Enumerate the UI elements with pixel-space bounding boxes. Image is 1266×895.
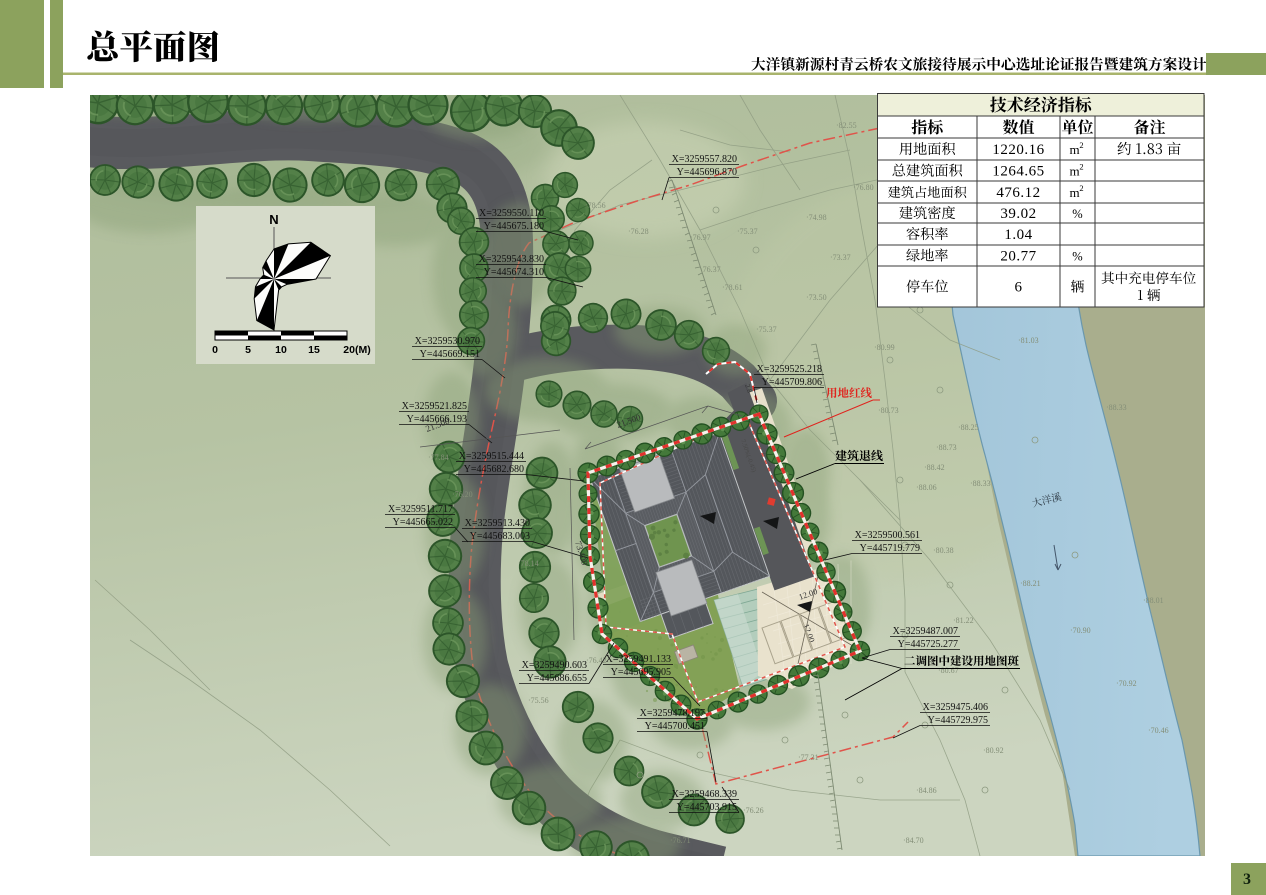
svg-text:1220.16: 1220.16	[992, 142, 1044, 158]
svg-text:·80.73: ·80.73	[878, 406, 899, 415]
svg-text:%: %	[1072, 250, 1082, 264]
svg-text:Y=445700.451: Y=445700.451	[645, 721, 705, 732]
svg-text:X=3259530.970: X=3259530.970	[415, 336, 480, 347]
svg-text:·88.73: ·88.73	[936, 443, 957, 452]
svg-text:Y=445683.003: Y=445683.003	[470, 531, 530, 542]
svg-text:m: m	[1069, 164, 1079, 179]
svg-text:·76.28: ·76.28	[628, 227, 649, 236]
svg-text:Y=445675.180: Y=445675.180	[484, 221, 544, 232]
svg-text:·84.70: ·84.70	[903, 836, 924, 845]
svg-text:·76.80: ·76.80	[853, 183, 874, 192]
svg-text:·74.98: ·74.98	[806, 213, 827, 222]
svg-text:Y=445703.915: Y=445703.915	[677, 802, 737, 813]
svg-text:3: 3	[1243, 871, 1251, 888]
svg-text:·82.55: ·82.55	[836, 121, 857, 130]
svg-text:·77.84: ·77.84	[428, 453, 449, 462]
svg-text:Y=445729.975: Y=445729.975	[928, 715, 988, 726]
svg-text:·88.25: ·88.25	[958, 423, 979, 432]
svg-text:5: 5	[245, 344, 251, 356]
svg-text:·76.26: ·76.26	[743, 806, 764, 815]
svg-text:15: 15	[308, 344, 320, 356]
svg-text:·70.46: ·70.46	[1148, 726, 1169, 735]
svg-text:·88.06: ·88.06	[916, 483, 937, 492]
svg-text:·81.22: ·81.22	[953, 616, 974, 625]
svg-text:N: N	[269, 212, 278, 227]
svg-text:·80.99: ·80.99	[874, 343, 895, 352]
svg-text:X=3259513.430: X=3259513.430	[465, 518, 530, 529]
svg-text:2: 2	[1079, 140, 1083, 150]
svg-text:·76.97: ·76.97	[690, 233, 711, 242]
svg-text:·76.20: ·76.20	[452, 490, 473, 499]
svg-text:·77.31: ·77.31	[798, 753, 819, 762]
svg-text:X=3259521.825: X=3259521.825	[402, 401, 467, 412]
svg-text:Y=445686.655: Y=445686.655	[527, 673, 587, 684]
svg-text:6: 6	[1015, 280, 1023, 296]
svg-text:X=3259511.717: X=3259511.717	[388, 504, 453, 515]
svg-text:476.12: 476.12	[996, 185, 1040, 201]
svg-text:1264.65: 1264.65	[992, 164, 1044, 180]
svg-text:Y=445696.870: Y=445696.870	[677, 167, 737, 178]
svg-text:X=3259500.561: X=3259500.561	[855, 530, 920, 541]
svg-text:2: 2	[1079, 162, 1083, 172]
svg-text:Y=445719.779: Y=445719.779	[860, 543, 920, 554]
svg-text:Y=445669.151: Y=445669.151	[420, 349, 480, 360]
svg-text:1.04: 1.04	[1004, 227, 1032, 243]
svg-text:·76.71: ·76.71	[670, 836, 691, 845]
svg-text:X=3259487.007: X=3259487.007	[893, 626, 958, 637]
svg-text:·70.90: ·70.90	[1070, 626, 1091, 635]
svg-text:10: 10	[275, 344, 287, 356]
svg-text:·88.01: ·88.01	[1143, 596, 1164, 605]
svg-text:2: 2	[1079, 183, 1083, 193]
svg-text:X=3259543.830: X=3259543.830	[479, 254, 544, 265]
svg-text:·70.92: ·70.92	[1116, 679, 1137, 688]
svg-text:Y=445665.022: Y=445665.022	[393, 517, 453, 528]
svg-text:·81.03: ·81.03	[1018, 336, 1039, 345]
svg-text:·80.67: ·80.67	[938, 666, 959, 675]
svg-text:0: 0	[212, 344, 218, 356]
svg-text:Y=445674.310: Y=445674.310	[484, 267, 544, 278]
svg-text:·75.37: ·75.37	[737, 227, 758, 236]
svg-text:·88.33: ·88.33	[970, 479, 991, 488]
svg-text:X=3259515.444: X=3259515.444	[459, 451, 524, 462]
svg-text:X=3259491.133: X=3259491.133	[606, 654, 671, 665]
svg-text:·80.92: ·80.92	[983, 746, 1004, 755]
svg-text:%: %	[1072, 207, 1082, 221]
svg-text:Y=445709.806: Y=445709.806	[762, 377, 822, 388]
svg-text:·80.38: ·80.38	[933, 546, 954, 555]
svg-text:·78.61: ·78.61	[722, 283, 743, 292]
svg-text:·88.33: ·88.33	[1106, 403, 1127, 412]
svg-text:Y=445725.277: Y=445725.277	[898, 639, 958, 650]
svg-text:Y=445695.905: Y=445695.905	[611, 667, 671, 678]
svg-text:m: m	[1069, 185, 1079, 200]
svg-text:20(M): 20(M)	[343, 344, 370, 356]
svg-text:·73.37: ·73.37	[830, 253, 851, 262]
svg-text:·76.37: ·76.37	[700, 265, 721, 274]
svg-text:·75.56: ·75.56	[528, 696, 549, 705]
svg-text:·84.86: ·84.86	[916, 786, 937, 795]
svg-text:·78.14: ·78.14	[518, 559, 539, 568]
svg-text:X=3259490.603: X=3259490.603	[522, 660, 587, 671]
svg-text:X=3259478.197: X=3259478.197	[640, 708, 705, 719]
svg-text:X=3259475.406: X=3259475.406	[923, 702, 988, 713]
svg-text:·88.42: ·88.42	[924, 463, 945, 472]
svg-text:X=3259557.820: X=3259557.820	[672, 154, 737, 165]
svg-text:39.02: 39.02	[1000, 206, 1036, 222]
svg-text:·73.50: ·73.50	[806, 293, 827, 302]
svg-text:Y=445682.680: Y=445682.680	[464, 464, 524, 475]
svg-text:X=3259550.110: X=3259550.110	[479, 208, 544, 219]
svg-text:X=3259525.218: X=3259525.218	[757, 364, 822, 375]
svg-text:m: m	[1069, 142, 1079, 157]
svg-text:20.77: 20.77	[1000, 249, 1036, 265]
svg-text:·78.56: ·78.56	[585, 201, 606, 210]
svg-text:·88.21: ·88.21	[1020, 579, 1041, 588]
svg-text:·75.37: ·75.37	[756, 325, 777, 334]
